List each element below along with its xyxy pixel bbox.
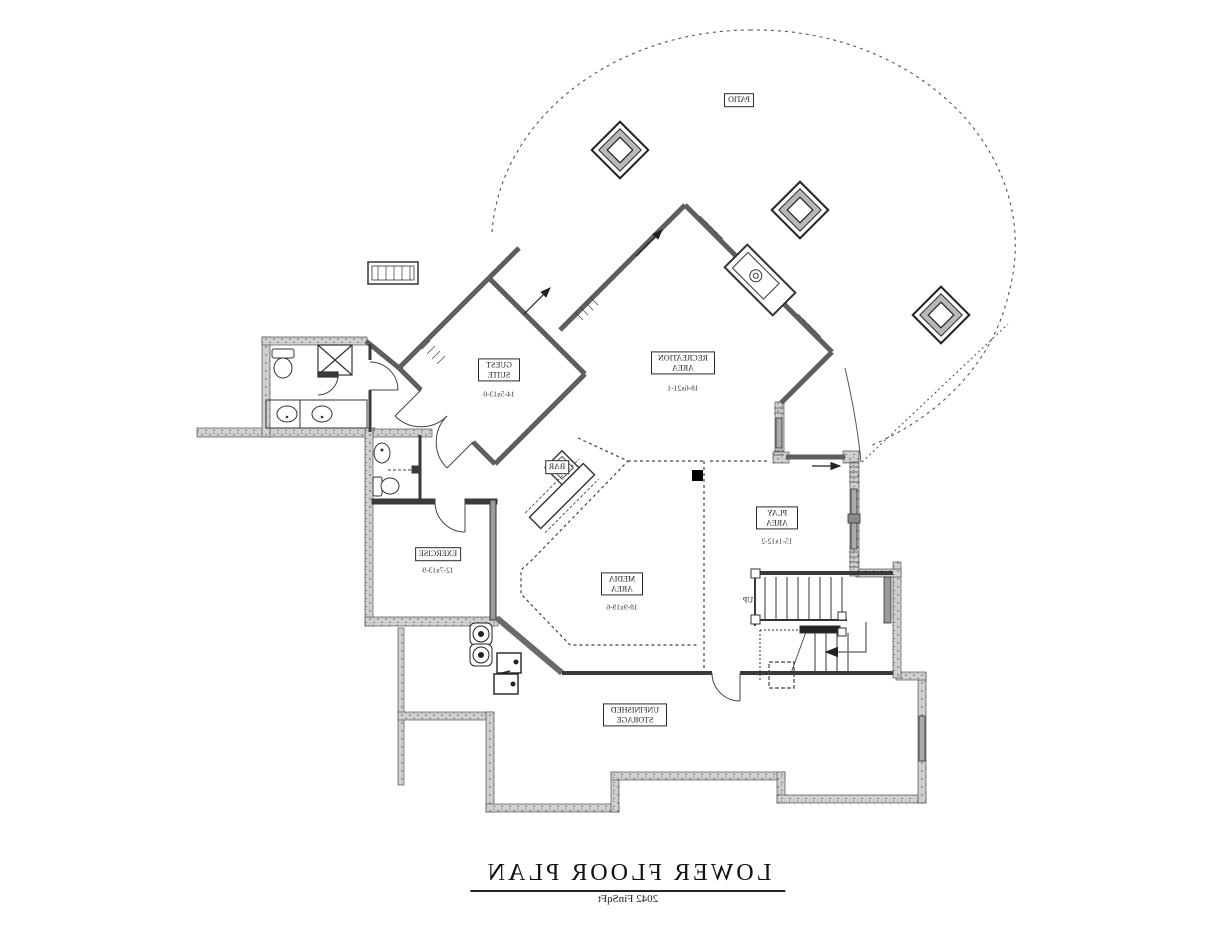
water-heater-icon-2 — [470, 644, 492, 666]
water-heater-icon — [470, 623, 492, 645]
room-dim-exercise: 12-7x13-9 — [422, 566, 453, 575]
vanity-icon — [266, 400, 367, 428]
room-label-patio: PATIO — [724, 93, 754, 107]
structural-column — [692, 470, 703, 481]
doors — [318, 362, 740, 701]
room-label-unfinished-storage: UNFINISHED STORAGE — [603, 703, 667, 726]
patio-step-curve — [845, 368, 861, 462]
furnace-icon-2 — [494, 674, 518, 694]
bathroom-fixtures — [266, 345, 399, 496]
room-dim-media-area: 18-9x19-6 — [606, 603, 637, 612]
shower-icon — [318, 345, 352, 377]
flow-arrows — [524, 230, 840, 466]
room-label-guest-suite: GUEST SUITE — [478, 358, 520, 381]
stairs-up-label: UP — [743, 596, 753, 605]
window-well — [368, 262, 418, 284]
furnace-icon — [494, 653, 521, 675]
room-label-recreation: RECREATION AREA — [651, 351, 715, 374]
powder-sink-icon — [374, 443, 390, 463]
stairs — [751, 569, 866, 680]
plan-area-note: 2042 FinSqFt — [598, 893, 658, 905]
diagonal-walls — [366, 205, 832, 464]
patio-pier-3 — [913, 287, 970, 344]
fireplace — [725, 245, 796, 316]
room-dim-guest-suite: 14-5x13-0 — [483, 390, 514, 399]
floor-plan-canvas: PATIO RECREATION AREA 18-6x21-1 GUEST SU… — [0, 0, 1212, 925]
room-dim-recreation: 18-6x21-1 — [667, 384, 698, 393]
room-label-media-area: MEDIA AREA — [601, 572, 643, 595]
room-label-play-area: PLAY AREA — [756, 506, 798, 529]
floor-plan-drawing — [0, 0, 1212, 925]
toilet-icon — [272, 349, 294, 378]
room-label-exercise: EXERCISE — [415, 547, 461, 561]
room-label-bar: BAR — [545, 460, 569, 474]
powder-toilet-icon — [373, 477, 399, 496]
plan-title: LOWER FLOOR PLAN — [471, 860, 786, 892]
patio-pier-1 — [592, 122, 649, 179]
room-dim-play-area: 15-1x12-2 — [761, 537, 792, 546]
patio-pier-2 — [772, 182, 829, 239]
